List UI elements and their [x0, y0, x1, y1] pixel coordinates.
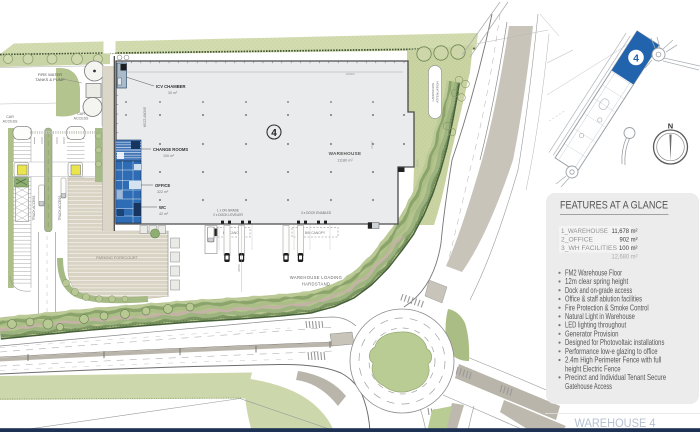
- svg-text:Office & staff ablution facili: Office & staff ablution facilities: [565, 295, 642, 304]
- svg-text:TANKS & PUMP: TANKS & PUMP: [35, 77, 65, 82]
- svg-text:Natural Light in Warehouse: Natural Light in Warehouse: [565, 312, 635, 321]
- svg-text:BIN CANOPY: BIN CANOPY: [305, 231, 326, 235]
- svg-text:WAREHOUSE 4: WAREHOUSE 4: [575, 416, 656, 430]
- svg-text:Dock and on-grade access: Dock and on-grade access: [565, 286, 632, 295]
- svg-text:Precinct and Individual Tenant: Precinct and Individual Tenant Secure: [565, 373, 666, 382]
- svg-text:CHANGE ROOMS: CHANGE ROOMS: [153, 147, 188, 152]
- svg-text:LANDSCAPE: LANDSCAPE: [431, 83, 435, 102]
- svg-text:1 x ON GRADE: 1 x ON GRADE: [217, 209, 239, 213]
- svg-text:42 m²: 42 m²: [159, 212, 169, 216]
- svg-text:TRUCK ACCESS: TRUCK ACCESS: [58, 196, 62, 221]
- svg-text:3 x DOCK ENABLED: 3 x DOCK ENABLED: [301, 211, 332, 215]
- svg-text:Generator Provision: Generator Provision: [565, 329, 619, 338]
- svg-text:2.4m High Perimeter Fence with: 2.4m High Perimeter Fence with full: [565, 356, 662, 365]
- svg-text:902 m²: 902 m²: [620, 236, 639, 243]
- svg-text:ACCESS: ACCESS: [3, 119, 18, 123]
- svg-text:CAR: CAR: [6, 115, 14, 119]
- svg-text:PARKING FORECOURT: PARKING FORECOURT: [96, 256, 139, 260]
- svg-text:WC: WC: [159, 205, 166, 210]
- svg-text:145000: 145000: [345, 72, 355, 76]
- svg-text:2 x DOCK LEVELER: 2 x DOCK LEVELER: [213, 213, 243, 217]
- svg-text:Gatehouse Access: Gatehouse Access: [565, 382, 612, 391]
- svg-text:11180 m²: 11180 m²: [337, 159, 353, 163]
- svg-text:34500: 34500: [237, 264, 241, 272]
- svg-text:WAREHOUSE: WAREHOUSE: [329, 151, 362, 156]
- svg-text:HARDSTAND: HARDSTAND: [302, 282, 330, 287]
- svg-text:height Electric Fence: height Electric Fence: [565, 364, 621, 373]
- svg-text:11,678 m²: 11,678 m²: [612, 228, 639, 235]
- svg-text:4: 4: [633, 53, 639, 65]
- svg-text:LED lighting throughout: LED lighting throughout: [565, 321, 627, 330]
- svg-text:WAREHOUSE LOADING: WAREHOUSE LOADING: [290, 275, 342, 280]
- svg-text:12,680 m²: 12,680 m²: [612, 253, 639, 260]
- svg-text:1_WAREHOUSE: 1_WAREHOUSE: [561, 228, 609, 235]
- svg-text:322 m²: 322 m²: [157, 190, 169, 194]
- svg-text:OFFICE: OFFICE: [155, 183, 171, 188]
- svg-text:Designed for Photovoltaic inst: Designed for Photovoltaic installations: [565, 338, 664, 347]
- svg-text:Performance low-e glazing to o: Performance low-e glazing to office: [565, 347, 658, 356]
- svg-text:TRUCK ACCESS: TRUCK ACCESS: [32, 196, 36, 221]
- svg-text:CAR: CAR: [77, 112, 85, 116]
- svg-text:30 m²: 30 m²: [168, 91, 178, 95]
- svg-text:ACCESS: ACCESS: [74, 116, 89, 120]
- svg-text:100 m²: 100 m²: [163, 154, 175, 158]
- svg-text:ATTENUATION: ATTENUATION: [436, 81, 440, 102]
- svg-text:12m clear spring height: 12m clear spring height: [565, 277, 629, 286]
- svg-text:100 m²: 100 m²: [619, 245, 638, 252]
- svg-text:2_OFFICE: 2_OFFICE: [561, 236, 594, 243]
- svg-text:Fire Protection & Smoke Contro: Fire Protection & Smoke Control: [565, 303, 649, 312]
- svg-text:N: N: [668, 122, 673, 131]
- svg-text:FM2 Warehouse Floor: FM2 Warehouse Floor: [565, 268, 622, 277]
- svg-text:ICV CHAMBER: ICV CHAMBER: [156, 84, 186, 89]
- svg-text:81000: 81000: [416, 159, 420, 167]
- svg-text:MEZZ ABOVE: MEZZ ABOVE: [143, 107, 147, 127]
- svg-text:4: 4: [271, 128, 277, 139]
- svg-text:3_WH FACILITIES: 3_WH FACILITIES: [561, 245, 618, 252]
- svg-text:FEATURES AT A GLANCE: FEATURES AT A GLANCE: [560, 200, 668, 212]
